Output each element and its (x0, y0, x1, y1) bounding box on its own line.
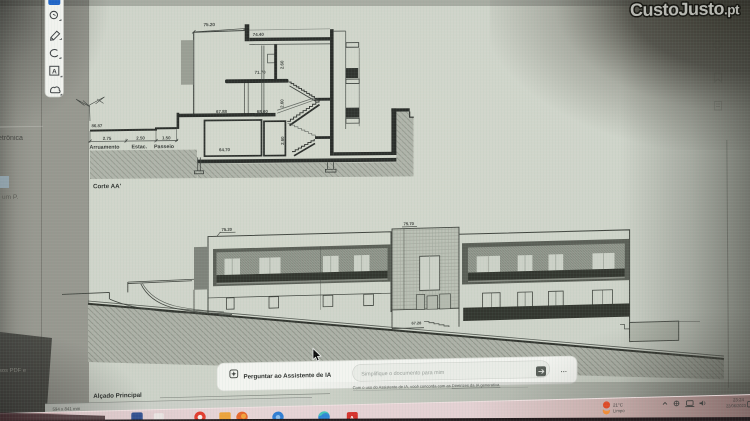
svg-text:Passeio: Passeio (154, 144, 175, 150)
svg-text:64.70: 64.70 (219, 147, 231, 152)
svg-text:2.50: 2.50 (136, 136, 145, 141)
svg-text:67.28: 67.28 (411, 320, 422, 325)
svg-text:2.60: 2.60 (279, 60, 284, 69)
svg-text:74.40: 74.40 (253, 32, 265, 37)
svg-text:75.20: 75.20 (221, 227, 232, 232)
svg-text:2.75: 2.75 (103, 136, 112, 141)
svg-text:um P.: um P. (2, 194, 18, 201)
svg-text:21°C: 21°C (613, 402, 624, 407)
svg-text:71.70: 71.70 (255, 70, 267, 75)
svg-text:2.60: 2.60 (279, 99, 284, 108)
svg-text:23:24: 23:24 (733, 397, 745, 402)
svg-text:CustoJusto.pt: CustoJusto.pt (630, 0, 740, 20)
svg-text:A: A (52, 69, 57, 76)
svg-text:86.87: 86.87 (92, 123, 103, 128)
svg-text:2.60: 2.60 (280, 136, 285, 145)
svg-text:Corte AA': Corte AA' (93, 183, 122, 190)
svg-text:etrônica: etrônica (0, 135, 23, 142)
svg-text:Limpo: Limpo (613, 408, 625, 413)
svg-text:75.70: 75.70 (404, 221, 415, 226)
svg-text:22/06/2023: 22/06/2023 (726, 403, 747, 409)
svg-text:Estac.: Estac. (132, 144, 148, 150)
svg-text:1.50: 1.50 (162, 135, 171, 140)
svg-text:Arruamento: Arruamento (90, 145, 121, 151)
svg-text:75.20: 75.20 (204, 22, 216, 27)
